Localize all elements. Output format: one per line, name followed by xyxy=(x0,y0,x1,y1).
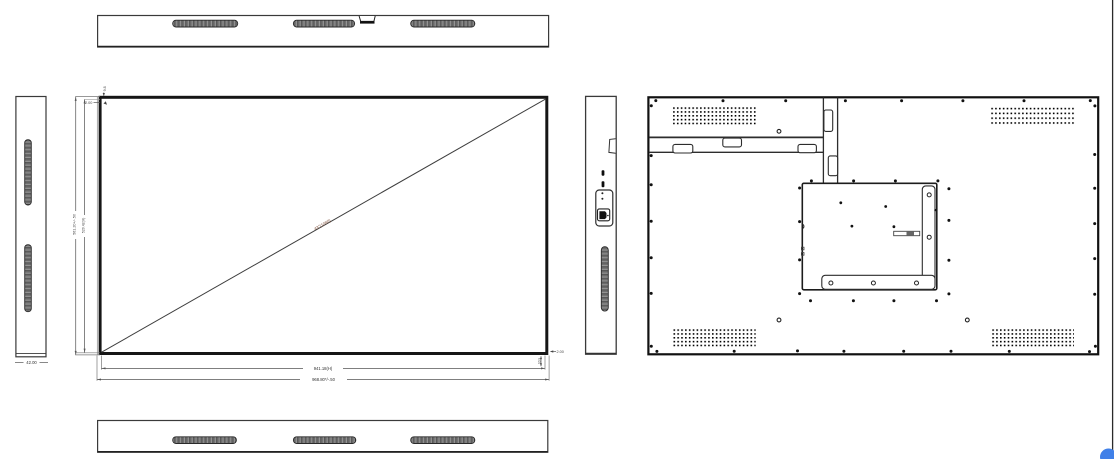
svg-text:561.20+/-.50: 561.20+/-.50 xyxy=(73,214,77,235)
svg-text:9.8: 9.8 xyxy=(103,86,107,91)
svg-text:10.9: 10.9 xyxy=(537,358,541,364)
svg-text:529.42(V): 529.42(V) xyxy=(82,218,86,233)
svg-text:968.80*/-.50: 968.80*/-.50 xyxy=(312,377,335,382)
svg-text:2.00: 2.00 xyxy=(85,101,92,105)
svg-text:2.00: 2.00 xyxy=(557,350,564,354)
svg-text:42.00: 42.00 xyxy=(26,360,37,365)
svg-text:941.18(H): 941.18(H) xyxy=(314,366,333,371)
